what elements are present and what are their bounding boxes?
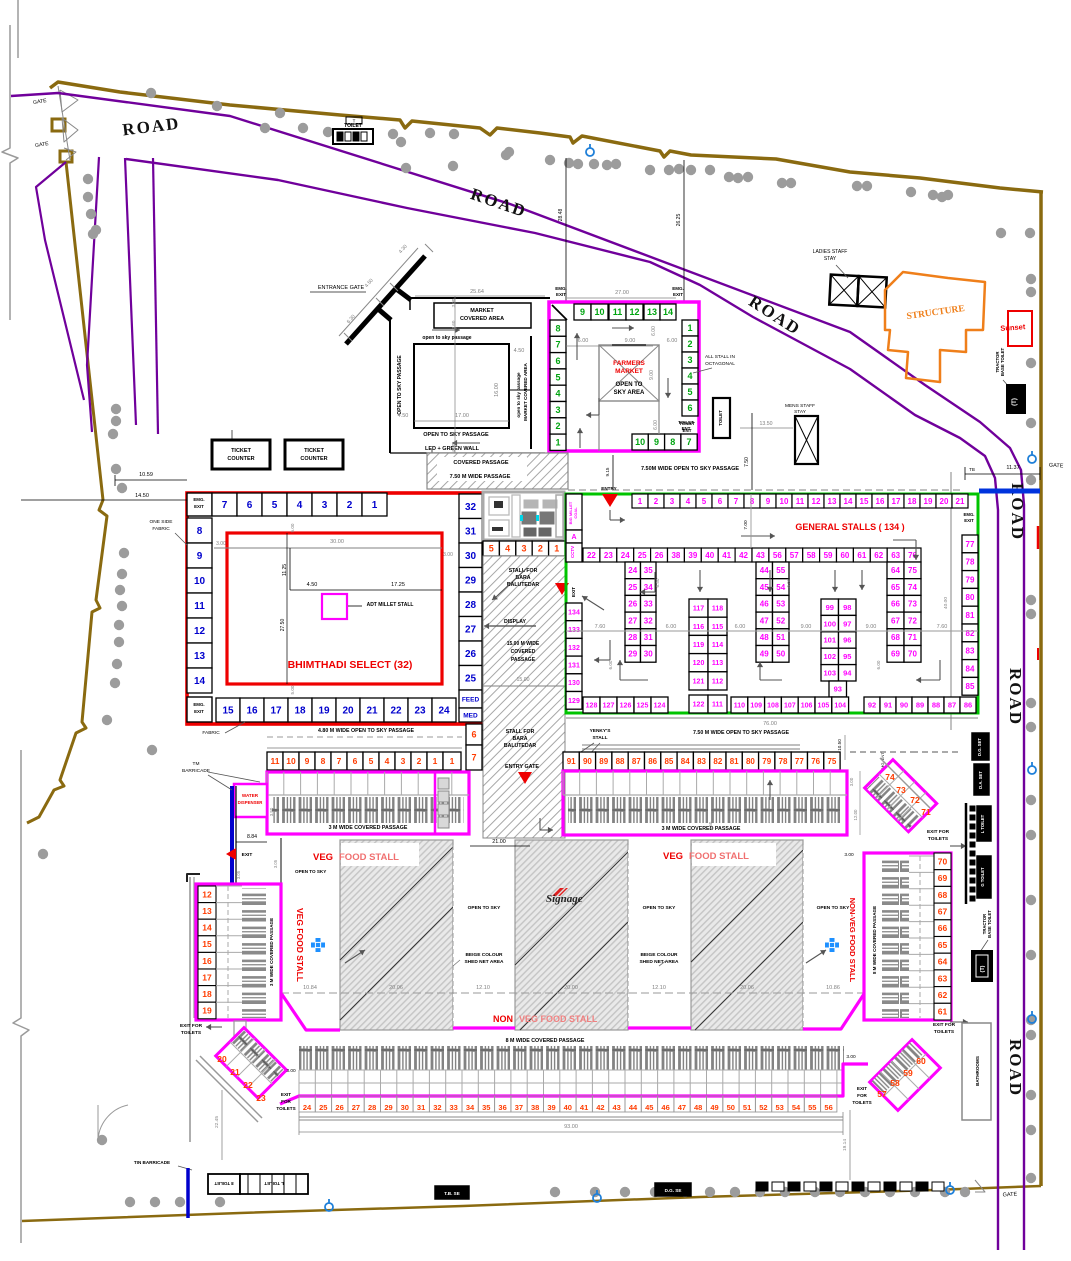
svg-text:COVERED AREA: COVERED AREA — [460, 316, 504, 322]
svg-text:14: 14 — [663, 307, 673, 317]
svg-text:98: 98 — [843, 603, 851, 612]
svg-text:T: T — [353, 119, 356, 124]
svg-text:11: 11 — [194, 601, 205, 612]
svg-text:8 M WIDE COVERED PASSAGE: 8 M WIDE COVERED PASSAGE — [506, 1038, 585, 1044]
svg-text:EXIT FOR: EXIT FOR — [927, 829, 950, 835]
svg-text:21: 21 — [230, 1067, 240, 1077]
svg-text:8 M WIDE COVERED PASSAGE: 8 M WIDE COVERED PASSAGE — [872, 906, 877, 974]
svg-text:ROAD: ROAD — [1006, 1039, 1025, 1097]
svg-text:COVERED PASSAGE: COVERED PASSAGE — [453, 460, 509, 466]
svg-text:91: 91 — [567, 757, 576, 766]
svg-text:10: 10 — [635, 437, 645, 447]
svg-text:27: 27 — [352, 1103, 360, 1112]
svg-text:134: 134 — [568, 609, 580, 616]
svg-text:9.15: 9.15 — [605, 467, 610, 476]
svg-text:29: 29 — [384, 1103, 392, 1112]
svg-text:BEIGE COLOUR: BEIGE COLOUR — [640, 952, 678, 958]
svg-text:TOILETS: TOILETS — [928, 836, 949, 842]
svg-text:113: 113 — [712, 660, 723, 667]
svg-text:12: 12 — [812, 497, 821, 506]
svg-text:13: 13 — [202, 906, 212, 916]
svg-text:25: 25 — [628, 583, 637, 592]
svg-text:79: 79 — [966, 575, 975, 584]
svg-text:D.G. SE: D.G. SE — [665, 1188, 682, 1193]
svg-text:51: 51 — [776, 633, 785, 642]
svg-text:EXIT: EXIT — [673, 292, 683, 297]
svg-text:81: 81 — [730, 757, 739, 766]
svg-text:TICKET: TICKET — [231, 448, 252, 454]
svg-text:TOILET: TOILET — [678, 420, 694, 425]
svg-text:27: 27 — [465, 624, 477, 635]
svg-text:FEED: FEED — [462, 696, 480, 703]
svg-text:8: 8 — [321, 756, 326, 766]
svg-text:39: 39 — [688, 551, 697, 560]
svg-text:28: 28 — [465, 600, 477, 611]
svg-text:90: 90 — [583, 757, 592, 766]
svg-text:22: 22 — [587, 551, 596, 560]
svg-text:24: 24 — [621, 551, 630, 560]
svg-text:87: 87 — [632, 757, 641, 766]
svg-text:6.00: 6.00 — [735, 624, 746, 630]
svg-text:105: 105 — [818, 703, 830, 710]
svg-text:95: 95 — [843, 652, 851, 661]
svg-text:OPEN TO SKY: OPEN TO SKY — [468, 905, 501, 911]
svg-text:20.06: 20.06 — [740, 985, 754, 991]
svg-text:OPEN TO SKY: OPEN TO SKY — [295, 869, 326, 874]
svg-text:80: 80 — [966, 593, 975, 602]
svg-text:7.50M WIDE OPEN TO SKY PASSAGE: 7.50M WIDE OPEN TO SKY PASSAGE — [641, 466, 739, 472]
svg-text:FOR: FOR — [281, 1099, 291, 1104]
svg-text:YENKY'S: YENKY'S — [590, 728, 612, 734]
svg-text:50: 50 — [776, 650, 785, 659]
svg-text:3.50: 3.50 — [269, 807, 274, 816]
svg-text:28: 28 — [628, 633, 637, 642]
svg-text:17: 17 — [892, 497, 901, 506]
svg-text:6: 6 — [687, 403, 692, 413]
svg-text:75: 75 — [827, 757, 836, 766]
svg-text:106: 106 — [801, 703, 813, 710]
svg-text:126: 126 — [620, 703, 632, 710]
svg-text:56: 56 — [824, 1103, 832, 1112]
svg-text:L TOILET: L TOILET — [264, 1181, 284, 1186]
svg-text:17: 17 — [270, 706, 282, 717]
svg-text:GENERAL STALLS ( 134 ): GENERAL STALLS ( 134 ) — [795, 522, 904, 532]
svg-text:VEG FOOD STALL: VEG FOOD STALL — [295, 908, 305, 982]
svg-text:OCTAGONAL: OCTAGONAL — [705, 361, 735, 367]
svg-text:MENS STAFF: MENS STAFF — [785, 403, 815, 409]
svg-text:ENTRANCE GATE: ENTRANCE GATE — [318, 285, 365, 291]
svg-text:EMG.: EMG. — [964, 512, 975, 517]
svg-text:26: 26 — [335, 1103, 343, 1112]
svg-text:1: 1 — [638, 497, 643, 506]
svg-text:EXIT: EXIT — [571, 587, 576, 597]
svg-text:17.25: 17.25 — [391, 582, 405, 588]
svg-text:6.00: 6.00 — [651, 326, 657, 336]
svg-text:50: 50 — [727, 1103, 735, 1112]
svg-text:128: 128 — [586, 703, 598, 710]
svg-text:TOILETS: TOILETS — [934, 1029, 955, 1035]
svg-text:FARMERS: FARMERS — [613, 360, 645, 367]
svg-text:61: 61 — [857, 551, 866, 560]
svg-text:120: 120 — [693, 660, 705, 667]
svg-text:88: 88 — [932, 701, 940, 710]
svg-text:44: 44 — [629, 1103, 638, 1112]
svg-text:L TOILET: L TOILET — [980, 814, 985, 833]
svg-text:5: 5 — [702, 497, 707, 506]
svg-text:34: 34 — [644, 583, 653, 592]
svg-text:3.05: 3.05 — [273, 859, 278, 868]
svg-text:11: 11 — [271, 756, 280, 766]
svg-text:40: 40 — [564, 1103, 572, 1112]
svg-text:G TOILET: G TOILET — [980, 867, 985, 887]
svg-text:130: 130 — [568, 680, 580, 687]
svg-text:75: 75 — [908, 566, 917, 575]
svg-text:6.50: 6.50 — [655, 578, 660, 587]
svg-text:MARKET: MARKET — [470, 308, 494, 314]
svg-text:7: 7 — [555, 340, 560, 350]
svg-text:Sunset: Sunset — [1000, 322, 1026, 333]
svg-text:62: 62 — [874, 551, 883, 560]
svg-text:43: 43 — [613, 1103, 621, 1112]
svg-text:BARA: BARA — [513, 736, 528, 742]
svg-text:GATE: GATE — [1002, 1191, 1017, 1198]
svg-text:92: 92 — [868, 701, 876, 710]
svg-text:91: 91 — [884, 701, 892, 710]
svg-text:77: 77 — [966, 540, 975, 549]
svg-text:DISPENSER: DISPENSER — [238, 800, 264, 805]
svg-text:20: 20 — [940, 497, 949, 506]
svg-text:EXIT FOR: EXIT FOR — [180, 1023, 203, 1029]
svg-text:68: 68 — [891, 633, 900, 642]
svg-text:63: 63 — [891, 551, 900, 560]
svg-text:14.50: 14.50 — [135, 493, 149, 499]
svg-text:108: 108 — [767, 703, 779, 710]
svg-text:30: 30 — [401, 1103, 409, 1112]
svg-text:6.00: 6.00 — [876, 660, 881, 669]
svg-text:30: 30 — [465, 551, 477, 562]
svg-text:96: 96 — [843, 636, 851, 645]
svg-text:SHED NET AREA: SHED NET AREA — [639, 959, 679, 965]
svg-text:4: 4 — [686, 497, 691, 506]
svg-text:EXIT: EXIT — [964, 518, 974, 523]
svg-text:60: 60 — [916, 1056, 926, 1066]
svg-text:12.10: 12.10 — [652, 985, 666, 991]
svg-text:90: 90 — [900, 701, 908, 710]
svg-text:30: 30 — [644, 650, 653, 659]
svg-text:2: 2 — [687, 339, 692, 349]
svg-text:2: 2 — [347, 500, 353, 511]
svg-text:EXIT: EXIT — [194, 504, 204, 509]
svg-text:48: 48 — [694, 1103, 702, 1112]
svg-text:15.00: 15.00 — [517, 677, 530, 683]
svg-text:103: 103 — [823, 669, 836, 678]
svg-text:9: 9 — [654, 437, 659, 447]
svg-text:42: 42 — [596, 1103, 604, 1112]
svg-text:6: 6 — [353, 756, 358, 766]
svg-text:20: 20 — [217, 1054, 227, 1064]
svg-text:SHED NET AREA: SHED NET AREA — [464, 959, 504, 965]
svg-text:FOR: FOR — [857, 1093, 867, 1098]
svg-text:8.84: 8.84 — [247, 834, 257, 840]
svg-text:14: 14 — [844, 497, 853, 506]
svg-text:78: 78 — [779, 757, 788, 766]
svg-text:BALUTEDAR: BALUTEDAR — [504, 743, 537, 749]
svg-text:81: 81 — [966, 611, 975, 620]
svg-text:A: A — [571, 534, 576, 541]
svg-text:7: 7 — [222, 500, 228, 511]
svg-text:117: 117 — [693, 606, 704, 613]
svg-text:9.00: 9.00 — [866, 624, 877, 630]
svg-text:D.G. SET: D.G. SET — [977, 738, 982, 756]
svg-text:9.00: 9.00 — [649, 370, 655, 380]
svg-text:28.48: 28.48 — [558, 209, 564, 222]
svg-text:OPEN TO SKY: OPEN TO SKY — [643, 905, 676, 911]
svg-text:EXIT: EXIT — [242, 852, 253, 858]
svg-text:45: 45 — [645, 1103, 653, 1112]
svg-text:TICKET: TICKET — [304, 448, 325, 454]
svg-text:BASE TOILET: BASE TOILET — [1000, 347, 1005, 376]
svg-text:61: 61 — [938, 1007, 948, 1017]
svg-text:TB: TB — [969, 467, 975, 472]
svg-text:110: 110 — [734, 703, 745, 710]
svg-text:69: 69 — [938, 873, 948, 883]
svg-text:71: 71 — [921, 807, 931, 817]
svg-text:5: 5 — [272, 500, 278, 511]
svg-text:83: 83 — [966, 647, 975, 656]
svg-text:1: 1 — [555, 437, 560, 447]
svg-text:TOILETS: TOILETS — [852, 1100, 871, 1105]
svg-text:13: 13 — [194, 651, 206, 662]
svg-text:88: 88 — [616, 757, 625, 766]
svg-text:NON: NON — [493, 1014, 513, 1024]
svg-text:4: 4 — [687, 371, 692, 381]
svg-text:94: 94 — [843, 669, 852, 678]
svg-text:31: 31 — [465, 526, 477, 537]
svg-text:57: 57 — [877, 1089, 887, 1099]
svg-text:12.10: 12.10 — [476, 985, 490, 991]
svg-text:23: 23 — [256, 1093, 266, 1103]
svg-text:ALL STALL IN: ALL STALL IN — [705, 354, 735, 360]
svg-text:5.00: 5.00 — [290, 685, 295, 694]
svg-text:65: 65 — [938, 940, 948, 950]
svg-text:EXIT: EXIT — [857, 1086, 867, 1091]
svg-text:10.59: 10.59 — [139, 472, 153, 478]
svg-text:5: 5 — [489, 544, 494, 554]
svg-text:3.50: 3.50 — [708, 821, 713, 830]
svg-text:OPEN TO SKY PASSAGE: OPEN TO SKY PASSAGE — [423, 432, 489, 438]
svg-text:EXIT: EXIT — [281, 1092, 291, 1097]
svg-text:43: 43 — [756, 551, 765, 560]
svg-text:COVERED: COVERED — [511, 649, 536, 655]
svg-text:107: 107 — [784, 703, 796, 710]
svg-text:85: 85 — [664, 757, 673, 766]
svg-text:100: 100 — [823, 619, 836, 628]
svg-text:14: 14 — [202, 923, 212, 933]
svg-text:7: 7 — [471, 753, 476, 763]
svg-text:9: 9 — [197, 551, 203, 562]
svg-text:13: 13 — [647, 307, 657, 317]
svg-text:12.00: 12.00 — [853, 809, 858, 821]
svg-text:8: 8 — [750, 497, 755, 506]
svg-text:4: 4 — [555, 389, 560, 399]
svg-text:68: 68 — [938, 890, 948, 900]
svg-text:41: 41 — [580, 1103, 588, 1112]
svg-text:79: 79 — [762, 757, 771, 766]
svg-text:69: 69 — [891, 650, 900, 659]
svg-text:14: 14 — [194, 676, 206, 687]
svg-text:3.05: 3.05 — [236, 870, 241, 879]
svg-text:D.A. SET: D.A. SET — [978, 771, 983, 789]
svg-text:46: 46 — [760, 600, 769, 609]
svg-text:32: 32 — [465, 502, 477, 513]
svg-text:7.60: 7.60 — [595, 624, 606, 630]
svg-text:63: 63 — [938, 973, 948, 983]
svg-text:66: 66 — [938, 923, 948, 933]
svg-text:10.50: 10.50 — [837, 739, 842, 751]
svg-text:EXIT FOR: EXIT FOR — [933, 1022, 956, 1028]
svg-text:42: 42 — [739, 551, 748, 560]
svg-text:40.00: 40.00 — [943, 597, 949, 609]
svg-text:FOOD STALL: FOOD STALL — [689, 851, 749, 862]
svg-text:65: 65 — [891, 583, 900, 592]
svg-text:86: 86 — [648, 757, 657, 766]
svg-text:13.50: 13.50 — [760, 421, 773, 427]
svg-text:38: 38 — [531, 1103, 539, 1112]
svg-text:9.00: 9.00 — [801, 624, 812, 630]
svg-text:10: 10 — [780, 497, 789, 506]
svg-text:71: 71 — [908, 633, 917, 642]
svg-text:72: 72 — [908, 616, 917, 625]
svg-text:44: 44 — [760, 566, 769, 575]
svg-text:8: 8 — [197, 526, 203, 537]
svg-text:11: 11 — [796, 497, 805, 506]
svg-text:ENT: ENT — [682, 426, 691, 431]
svg-text:99: 99 — [826, 603, 834, 612]
svg-text:STALL: STALL — [592, 735, 607, 741]
svg-text:4.50: 4.50 — [307, 582, 318, 588]
svg-text:DISPLAY: DISPLAY — [504, 619, 527, 625]
svg-text:86: 86 — [964, 701, 972, 710]
svg-text:1: 1 — [372, 500, 378, 511]
svg-text:25: 25 — [638, 551, 647, 560]
svg-text:80: 80 — [746, 757, 755, 766]
svg-text:74: 74 — [908, 583, 917, 592]
svg-text:18: 18 — [202, 989, 212, 999]
svg-text:26: 26 — [465, 649, 477, 660]
svg-text:COUNTER: COUNTER — [300, 456, 327, 462]
svg-text:116: 116 — [693, 624, 704, 631]
svg-text:70: 70 — [908, 650, 917, 659]
svg-text:6: 6 — [555, 356, 560, 366]
svg-text:19: 19 — [318, 706, 330, 717]
svg-text:132: 132 — [568, 645, 580, 652]
svg-text:16.00: 16.00 — [494, 383, 500, 397]
svg-text:1: 1 — [450, 756, 455, 766]
svg-text:24: 24 — [438, 706, 450, 717]
svg-text:9.00: 9.00 — [625, 338, 636, 344]
svg-text:67: 67 — [938, 907, 948, 917]
svg-text:76: 76 — [811, 757, 820, 766]
svg-text:64: 64 — [891, 566, 900, 575]
svg-text:85: 85 — [966, 682, 975, 691]
svg-text:64: 64 — [938, 957, 948, 967]
svg-text:9: 9 — [766, 497, 771, 506]
svg-text:54: 54 — [792, 1103, 801, 1112]
svg-text:87: 87 — [948, 701, 956, 710]
svg-text:124: 124 — [654, 703, 666, 710]
svg-text:20: 20 — [342, 706, 354, 717]
svg-text:WATER: WATER — [242, 793, 259, 798]
svg-text:BARRICADE: BARRICADE — [182, 768, 210, 774]
svg-text:4.50: 4.50 — [398, 413, 409, 419]
svg-text:12: 12 — [629, 307, 639, 317]
svg-text:21: 21 — [366, 706, 378, 717]
svg-text:59: 59 — [824, 551, 833, 560]
svg-text:47: 47 — [760, 616, 769, 625]
svg-text:VEG: VEG — [313, 852, 333, 863]
svg-text:32: 32 — [644, 616, 653, 625]
svg-text:7: 7 — [337, 756, 342, 766]
svg-text:52: 52 — [759, 1103, 767, 1112]
svg-text:1: 1 — [554, 544, 559, 554]
svg-text:73: 73 — [896, 785, 906, 795]
svg-text:60: 60 — [840, 551, 849, 560]
svg-text:31: 31 — [644, 633, 653, 642]
svg-text:open to sky passage: open to sky passage — [516, 372, 521, 418]
svg-text:32: 32 — [433, 1103, 441, 1112]
svg-text:26: 26 — [655, 551, 664, 560]
svg-text:29: 29 — [465, 575, 477, 586]
svg-text:3.00: 3.00 — [849, 777, 854, 786]
svg-text:121: 121 — [693, 678, 705, 685]
svg-text:53: 53 — [776, 600, 785, 609]
svg-text:9: 9 — [305, 756, 310, 766]
svg-text:30.00: 30.00 — [330, 539, 344, 545]
svg-text:3.00: 3.00 — [844, 852, 854, 858]
svg-text:131: 131 — [568, 662, 580, 669]
svg-text:11: 11 — [613, 307, 623, 317]
svg-text:129: 129 — [568, 698, 580, 705]
svg-text:13: 13 — [828, 497, 837, 506]
svg-text:26: 26 — [628, 600, 637, 609]
svg-text:3.00: 3.00 — [216, 541, 226, 547]
svg-text:35: 35 — [482, 1103, 490, 1112]
svg-text:15: 15 — [860, 497, 869, 506]
svg-text:OPEN TO SKY: OPEN TO SKY — [817, 905, 850, 911]
svg-text:6.00: 6.00 — [667, 338, 678, 344]
svg-text:Signage: Signage — [546, 893, 583, 905]
svg-text:70: 70 — [938, 856, 948, 866]
svg-text:31: 31 — [417, 1103, 425, 1112]
svg-text:COUNTER: COUNTER — [227, 456, 254, 462]
svg-text:6.00: 6.00 — [653, 420, 659, 430]
svg-text:(T): (T) — [980, 965, 986, 972]
svg-text:47: 47 — [678, 1103, 686, 1112]
svg-text:5: 5 — [369, 756, 374, 766]
svg-text:15: 15 — [202, 939, 212, 949]
svg-text:3 M WIDE COVERED PASSAGE: 3 M WIDE COVERED PASSAGE — [269, 918, 274, 986]
svg-text:102: 102 — [823, 652, 836, 661]
svg-text:23: 23 — [604, 551, 613, 560]
svg-text:19: 19 — [202, 1006, 212, 1016]
svg-text:NON-VEG FOOD STALL: NON-VEG FOOD STALL — [848, 898, 857, 983]
svg-text:7.60: 7.60 — [937, 624, 948, 630]
svg-text:20.00: 20.00 — [564, 985, 578, 991]
svg-text:27: 27 — [628, 616, 637, 625]
svg-text:EMG.: EMG. — [672, 286, 684, 291]
svg-text:115: 115 — [712, 624, 723, 631]
svg-text:ENTRY: ENTRY — [601, 486, 616, 491]
